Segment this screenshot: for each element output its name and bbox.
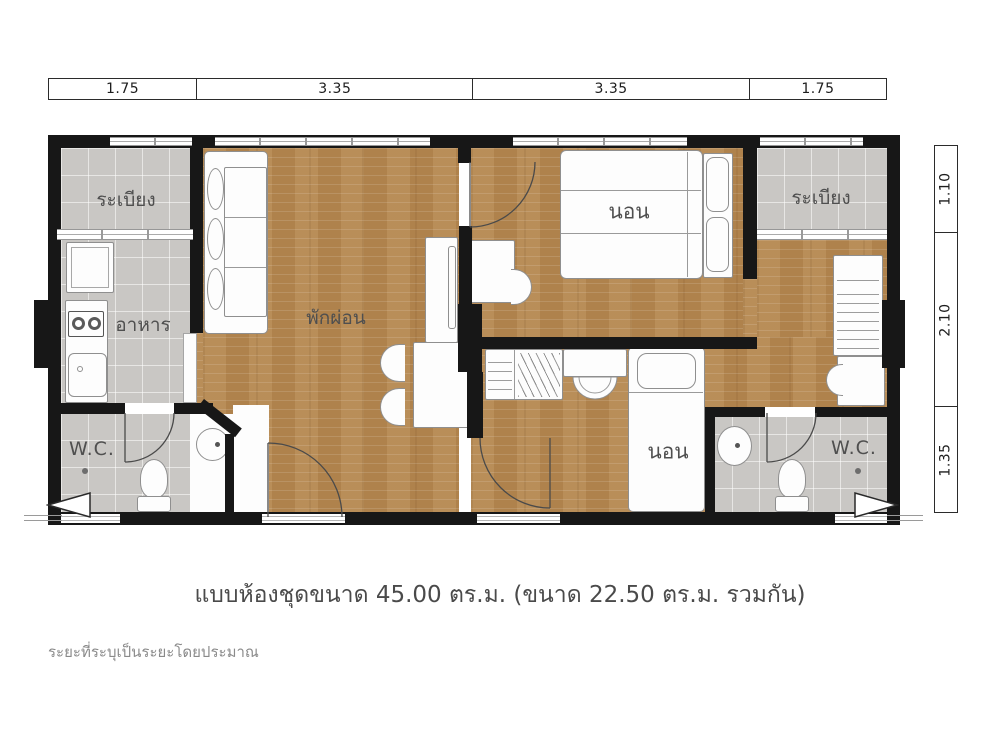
entry-wedge-left-shape — [48, 493, 90, 517]
right-dimension-bar: 1.10 2.10 1.35 — [934, 145, 958, 513]
threshold-line-outer-left — [24, 520, 62, 521]
threshold-line-outer-right — [887, 520, 923, 521]
dim-right-1: 1.10 — [935, 146, 957, 233]
label-bedroom-top: นอน — [608, 196, 649, 229]
door-arc-entrance-left — [268, 443, 342, 517]
dim-right-1-value: 1.10 — [938, 172, 954, 205]
label-bedroom-bottom: นอน — [647, 436, 688, 469]
dim-right-3-value: 1.35 — [938, 443, 954, 476]
label-balcony-left: ระเบียง — [96, 185, 155, 215]
label-dining: อาหาร — [115, 310, 170, 340]
entry-wedge-right-shape — [855, 493, 897, 517]
dim-right-3: 1.35 — [935, 407, 957, 512]
label-wc-right: W.C. — [831, 437, 877, 459]
dim-top-2: 3.35 — [197, 79, 473, 99]
dim-right-2: 2.10 — [935, 233, 957, 407]
door-arc-wc-left — [125, 413, 174, 462]
door-arc-entrance-right — [480, 438, 550, 508]
door-arc-wc-right — [767, 413, 816, 462]
door-arc-bedroom-top — [470, 162, 535, 227]
label-wc-left: W.C. — [69, 438, 115, 460]
door-swing-overlay — [48, 135, 900, 525]
label-balcony-right: ระเบียง — [791, 183, 850, 213]
top-dimension-bar: 1.75 3.35 3.35 1.75 — [48, 78, 887, 100]
label-living: พักผ่อน — [306, 303, 366, 333]
threshold-line-outer-right — [887, 515, 923, 516]
floor-plan-page: { "caption": "แบบห้องชุดขนาด 45.00 ตร.ม.… — [0, 0, 1000, 750]
plan-footnote: ระยะที่ระบุเป็นระยะโดยประมาณ — [48, 640, 259, 664]
dim-top-3: 3.35 — [473, 79, 749, 99]
dim-top-4: 1.75 — [750, 79, 886, 99]
dim-right-2-value: 2.10 — [938, 303, 954, 336]
dim-top-1: 1.75 — [49, 79, 197, 99]
threshold-line-outer-left — [24, 515, 62, 516]
plan-caption: แบบห้องชุดขนาด 45.00 ตร.ม. (ขนาด 22.50 ต… — [0, 577, 1000, 613]
